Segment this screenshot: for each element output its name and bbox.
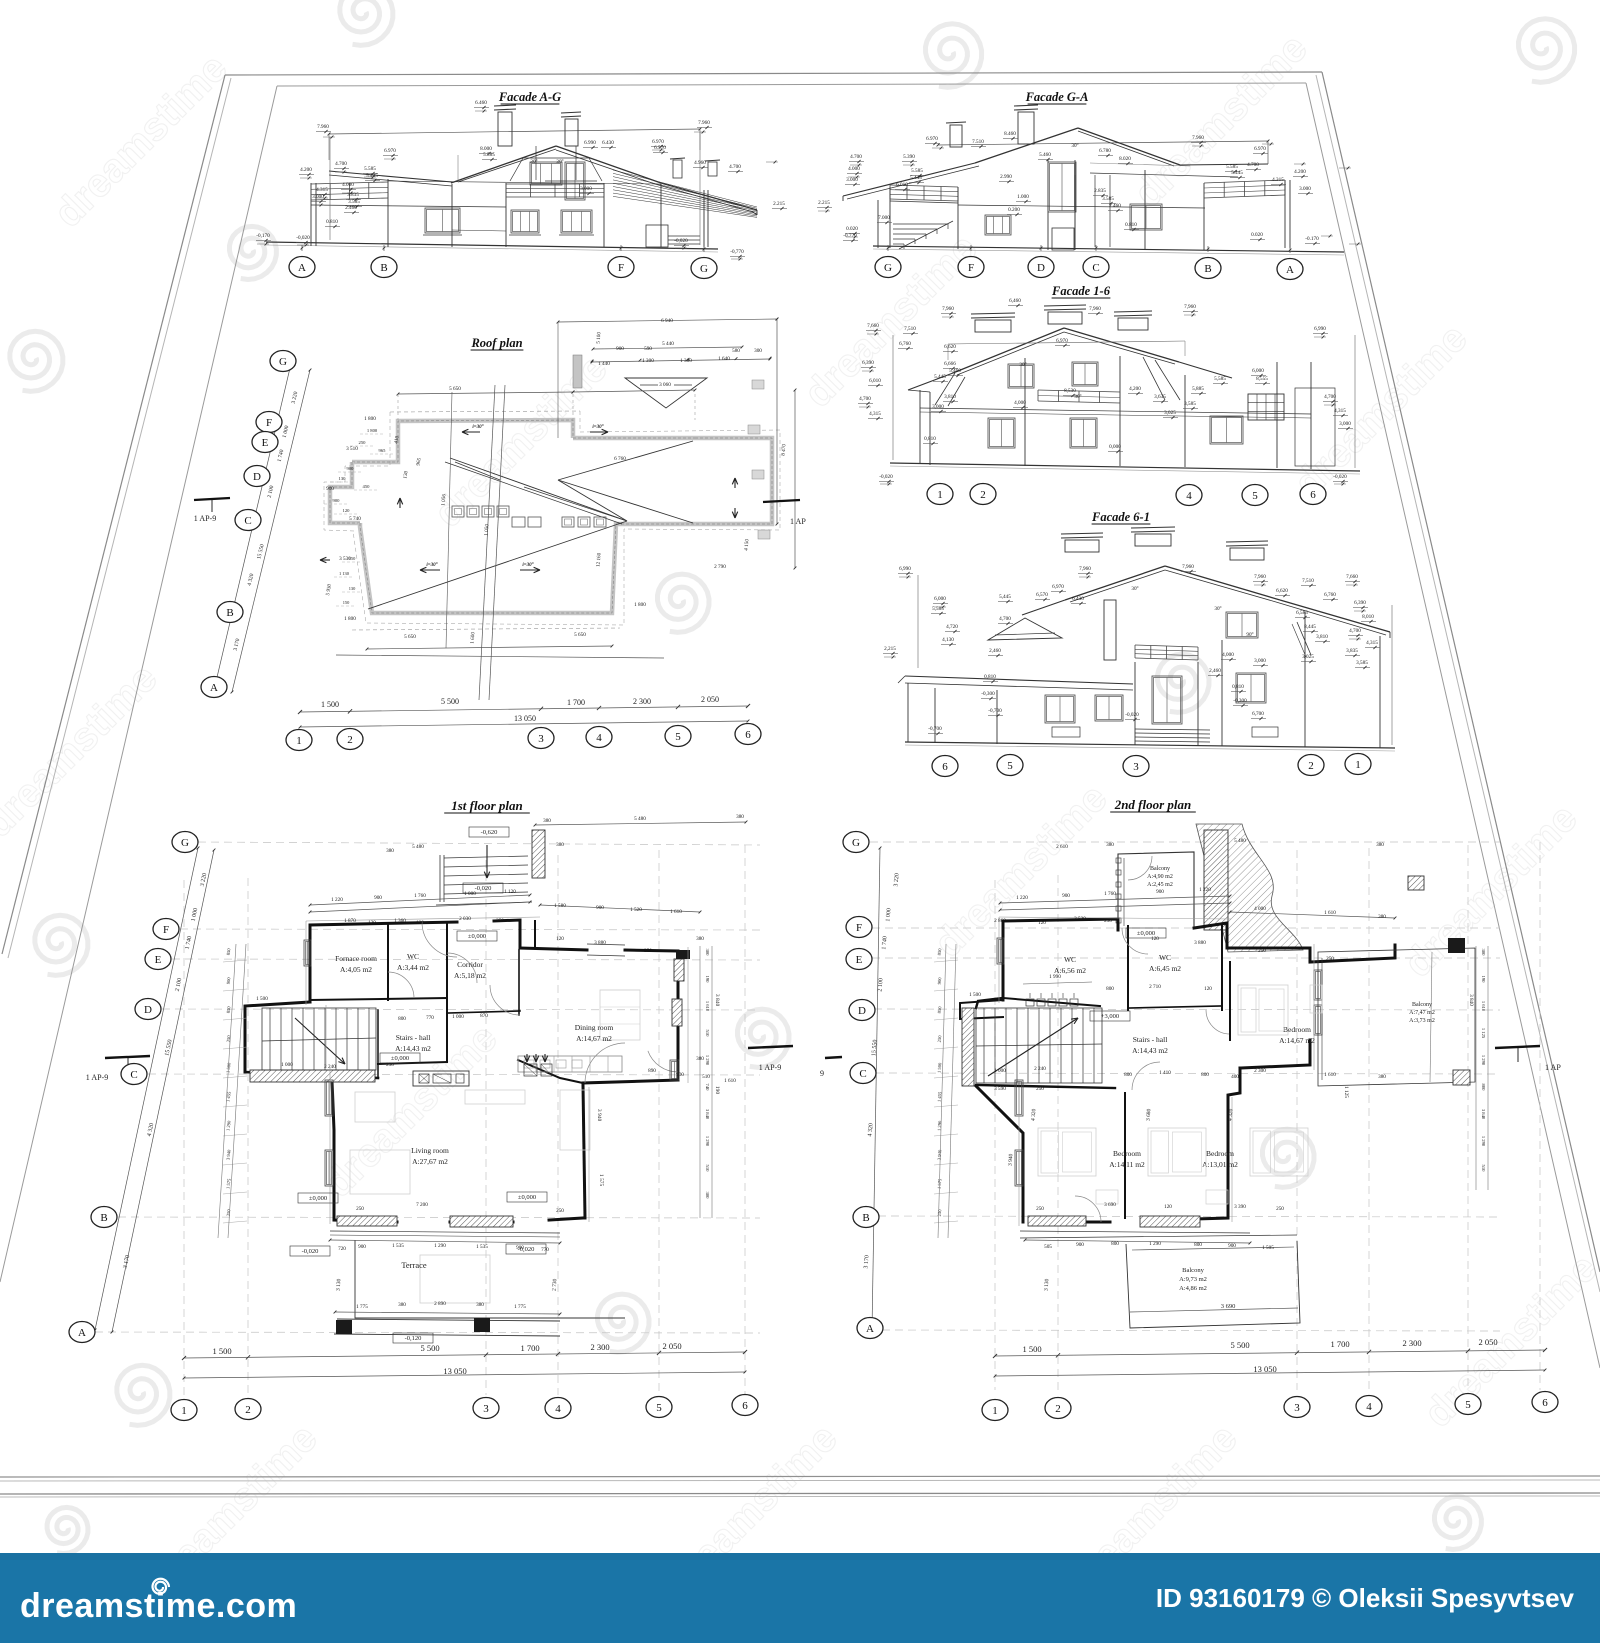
- svg-text:-0,020: -0,020: [879, 474, 893, 480]
- svg-text:6,000: 6,000: [934, 596, 946, 602]
- svg-text:380: 380: [476, 1302, 484, 1308]
- svg-text:F: F: [968, 262, 974, 274]
- svg-text:1 220: 1 220: [331, 897, 343, 903]
- svg-text:-0,700: -0,700: [988, 708, 1002, 714]
- svg-text:G: G: [181, 837, 189, 849]
- svg-text:2.215: 2.215: [773, 201, 785, 207]
- svg-text:1: 1: [181, 1405, 187, 1417]
- svg-text:6.460: 6.460: [475, 100, 487, 106]
- svg-text:1 610: 1 610: [724, 1078, 736, 1084]
- svg-text:120: 120: [1038, 920, 1046, 926]
- svg-text:1 AP-9: 1 AP-9: [759, 1063, 781, 1072]
- svg-text:A:14,67 m2: A:14,67 m2: [1279, 1036, 1315, 1045]
- svg-text:F: F: [163, 924, 169, 936]
- svg-text:Balcony: Balcony: [1412, 1002, 1432, 1008]
- svg-text:2 890: 2 890: [434, 1301, 446, 1307]
- svg-text:2.835: 2.835: [1094, 188, 1106, 194]
- svg-text:1 580: 1 580: [554, 903, 566, 909]
- svg-text:4,000: 4,000: [1222, 652, 1234, 658]
- svg-text:5 440: 5 440: [662, 341, 674, 347]
- svg-text:D: D: [253, 471, 261, 483]
- svg-text:5.460: 5.460: [1039, 152, 1051, 158]
- svg-text:2 790: 2 790: [714, 564, 726, 570]
- svg-text:5,445: 5,445: [999, 594, 1011, 600]
- svg-text:7.960: 7.960: [698, 120, 710, 126]
- svg-text:2 860: 2 860: [994, 918, 1006, 924]
- svg-text:0,000: 0,000: [1109, 444, 1121, 450]
- svg-text:3 840: 3 840: [714, 994, 720, 1007]
- svg-text:Stairs - hall: Stairs - hall: [1133, 1035, 1168, 1044]
- svg-text:0.810: 0.810: [326, 219, 338, 225]
- svg-text:1 220: 1 220: [1199, 887, 1211, 893]
- svg-text:4.315: 4.315: [316, 187, 328, 193]
- svg-text:580: 580: [732, 348, 740, 354]
- svg-text:4,700: 4,700: [859, 396, 871, 402]
- svg-text:13 050: 13 050: [443, 1366, 466, 1376]
- svg-text:5 500: 5 500: [420, 1343, 439, 1353]
- svg-text:3,025: 3,025: [1164, 410, 1176, 416]
- svg-text:1 AP: 1 AP: [1545, 1063, 1561, 1072]
- svg-text:380: 380: [543, 818, 551, 824]
- svg-text:7,960: 7,960: [1182, 564, 1194, 570]
- svg-text:A:3,73 m2: A:3,73 m2: [1409, 1018, 1435, 1024]
- svg-text:120: 120: [1204, 986, 1212, 992]
- svg-text:30°: 30°: [1214, 605, 1221, 612]
- svg-text:510: 510: [705, 1030, 710, 1038]
- svg-text:4,700: 4,700: [999, 616, 1011, 622]
- svg-text:3,635: 3,635: [1154, 394, 1166, 400]
- svg-text:5.445: 5.445: [1231, 170, 1243, 176]
- svg-text:5 100: 5 100: [596, 331, 603, 344]
- svg-text:4: 4: [596, 732, 602, 744]
- svg-text:E: E: [155, 954, 162, 966]
- svg-text:3 130: 3 130: [1043, 1278, 1050, 1291]
- svg-text:7,510: 7,510: [1302, 578, 1314, 584]
- svg-text:1 290: 1 290: [937, 1120, 943, 1131]
- svg-text:5: 5: [1252, 490, 1258, 502]
- svg-text:250: 250: [1326, 956, 1334, 962]
- svg-text:380: 380: [1378, 914, 1386, 920]
- svg-text:4.960: 4.960: [694, 160, 706, 166]
- svg-text:4,315: 4,315: [1334, 408, 1346, 414]
- svg-text:0.020: 0.020: [846, 226, 858, 232]
- svg-text:1 800: 1 800: [367, 428, 378, 433]
- svg-text:3: 3: [483, 1403, 489, 1415]
- svg-text:720: 720: [338, 1246, 346, 1252]
- svg-text:2 030: 2 030: [459, 916, 471, 922]
- svg-text:1 700: 1 700: [1330, 1339, 1349, 1349]
- svg-text:-0,020: -0,020: [674, 238, 688, 244]
- svg-text:F: F: [266, 417, 272, 429]
- svg-text:590: 590: [644, 346, 652, 352]
- svg-text:1 AP-9: 1 AP-9: [86, 1073, 108, 1082]
- svg-text:1 600: 1 600: [470, 631, 477, 644]
- svg-text:1 760: 1 760: [1104, 891, 1116, 897]
- svg-text:1 640: 1 640: [718, 356, 730, 362]
- svg-text:2.460: 2.460: [1109, 203, 1121, 209]
- svg-text:A:4,05 m2: A:4,05 m2: [340, 965, 372, 974]
- svg-text:A:4,90 m2: A:4,90 m2: [1147, 874, 1173, 880]
- svg-text:-0,700: -0,700: [928, 726, 942, 732]
- svg-text:450: 450: [363, 484, 371, 489]
- svg-text:3 940: 3 940: [596, 1109, 602, 1122]
- svg-text:3,585: 3,585: [1356, 660, 1368, 666]
- svg-text:380: 380: [705, 1192, 710, 1200]
- svg-text:1 125: 1 125: [1343, 1086, 1349, 1098]
- svg-text:5: 5: [1465, 1399, 1471, 1411]
- svg-text:120: 120: [1151, 936, 1159, 942]
- svg-text:5: 5: [675, 731, 681, 743]
- svg-text:0.020: 0.020: [1251, 232, 1263, 238]
- svg-text:-0,300: -0,300: [981, 691, 995, 697]
- svg-text:6,585: 6,585: [1296, 610, 1308, 616]
- svg-text:1 290: 1 290: [1481, 1055, 1486, 1066]
- svg-text:7.960: 7.960: [317, 124, 329, 130]
- svg-text:900: 900: [326, 486, 334, 492]
- svg-text:1 290: 1 290: [434, 1243, 446, 1249]
- svg-text:3 880: 3 880: [594, 940, 606, 946]
- svg-text:1 800: 1 800: [344, 616, 356, 622]
- svg-text:B: B: [862, 1212, 869, 1224]
- svg-text:740: 740: [705, 1084, 710, 1092]
- svg-text:5,460: 5,460: [949, 368, 961, 374]
- svg-text:-0.770: -0.770: [843, 233, 857, 239]
- svg-text:A:9,73 m2: A:9,73 m2: [1179, 1276, 1207, 1283]
- svg-text:6.970: 6.970: [926, 136, 938, 142]
- svg-text:D: D: [144, 1004, 152, 1016]
- svg-text:2: 2: [245, 1404, 251, 1416]
- svg-text:7,660: 7,660: [867, 323, 879, 329]
- svg-text:6 760: 6 760: [614, 456, 626, 462]
- svg-text:Facade A-G: Facade A-G: [498, 90, 561, 104]
- svg-text:6,430: 6,430: [1072, 596, 1084, 602]
- svg-text:1 800: 1 800: [364, 416, 376, 422]
- svg-text:1 056: 1 056: [441, 493, 448, 506]
- svg-text:5 650: 5 650: [449, 386, 461, 392]
- svg-text:6,760: 6,760: [899, 341, 911, 347]
- svg-text:190: 190: [1481, 976, 1486, 984]
- svg-text:3,835: 3,835: [1346, 648, 1358, 654]
- svg-text:7.000: 7.000: [878, 215, 890, 221]
- svg-text:3: 3: [1133, 761, 1139, 773]
- svg-text:-0,770: -0,770: [730, 249, 744, 255]
- svg-text:190: 190: [714, 1086, 720, 1095]
- svg-text:1 410: 1 410: [1159, 1070, 1171, 1076]
- svg-text:2 730: 2 730: [551, 1278, 558, 1291]
- svg-text:6,620: 6,620: [1276, 588, 1288, 594]
- svg-text:3,000: 3,000: [1254, 658, 1266, 664]
- svg-text:1st floor plan: 1st floor plan: [451, 798, 523, 813]
- svg-text:i=30°: i=30°: [592, 425, 603, 430]
- svg-text:120: 120: [343, 508, 351, 513]
- svg-text:1 520: 1 520: [630, 907, 642, 913]
- svg-text:WC: WC: [407, 952, 419, 961]
- svg-text:7.960: 7.960: [1192, 135, 1204, 141]
- svg-text:1 775: 1 775: [514, 1304, 526, 1310]
- svg-text:5 480: 5 480: [634, 816, 646, 822]
- svg-text:A:6,56 m2: A:6,56 m2: [1054, 966, 1086, 975]
- svg-text:3 840: 3 840: [1468, 994, 1474, 1006]
- svg-text:5,585: 5,585: [1214, 376, 1226, 382]
- svg-text:1 500: 1 500: [321, 700, 339, 709]
- svg-text:F: F: [618, 262, 624, 274]
- svg-text:250: 250: [556, 1208, 564, 1214]
- svg-text:3: 3: [1294, 1402, 1300, 1414]
- svg-text:1 000: 1 000: [885, 908, 892, 922]
- svg-text:1 535: 1 535: [392, 1243, 404, 1249]
- svg-text:A: A: [866, 1323, 874, 1335]
- svg-text:Bedroom: Bedroom: [1283, 1025, 1311, 1034]
- svg-text:C: C: [859, 1068, 866, 1080]
- svg-text:250: 250: [1258, 948, 1266, 954]
- svg-text:1 440: 1 440: [598, 361, 610, 367]
- svg-text:1 610: 1 610: [1324, 1072, 1336, 1078]
- svg-text:8.460: 8.460: [1004, 131, 1016, 137]
- svg-text:D: D: [858, 1005, 866, 1017]
- svg-text:±0,000: ±0,000: [518, 1194, 536, 1201]
- svg-text:380: 380: [1106, 842, 1114, 848]
- svg-text:2.460: 2.460: [345, 205, 357, 211]
- svg-text:250: 250: [359, 440, 367, 445]
- svg-text:510: 510: [702, 1074, 710, 1080]
- svg-text:850: 850: [937, 948, 943, 956]
- svg-text:250: 250: [1276, 1206, 1284, 1212]
- svg-text:4.200: 4.200: [300, 167, 312, 173]
- svg-text:1 800: 1 800: [634, 602, 646, 608]
- svg-text:7,960: 7,960: [1254, 574, 1266, 580]
- svg-text:C: C: [130, 1069, 137, 1081]
- svg-text:G: G: [852, 837, 860, 849]
- svg-text:505: 505: [1044, 1244, 1052, 1250]
- svg-text:6: 6: [1542, 1397, 1548, 1409]
- svg-text:770: 770: [426, 1015, 434, 1021]
- svg-text:1 000: 1 000: [464, 891, 476, 897]
- svg-text:0,810: 0,810: [924, 436, 936, 442]
- svg-text:1 360: 1 360: [394, 918, 406, 924]
- svg-text:6,570: 6,570: [1036, 592, 1048, 598]
- svg-text:3 510: 3 510: [346, 446, 358, 452]
- svg-text:1 870: 1 870: [344, 918, 356, 924]
- svg-text:6,990: 6,990: [899, 566, 911, 572]
- svg-text:130: 130: [349, 586, 356, 591]
- svg-text:7,960: 7,960: [1079, 566, 1091, 572]
- svg-text:7,510: 7,510: [904, 326, 916, 332]
- svg-text:770: 770: [541, 1247, 549, 1253]
- svg-text:8.020: 8.020: [1119, 156, 1131, 162]
- svg-text:4: 4: [1186, 490, 1192, 502]
- svg-text:30°: 30°: [530, 158, 537, 165]
- svg-text:3,810: 3,810: [1316, 634, 1328, 640]
- svg-text:90°: 90°: [1246, 631, 1253, 638]
- svg-text:3 840: 3 840: [1481, 1109, 1486, 1120]
- svg-text:900: 900: [1156, 889, 1164, 895]
- svg-text:8,555: 8,555: [1256, 376, 1268, 382]
- svg-text:G: G: [700, 263, 708, 275]
- svg-text:400: 400: [1231, 1074, 1239, 1080]
- svg-text:900: 900: [596, 905, 604, 911]
- svg-text:C: C: [1092, 262, 1099, 274]
- svg-text:1 AP: 1 AP: [790, 517, 806, 526]
- svg-text:-0,620: -0,620: [481, 829, 498, 836]
- svg-text:5 480: 5 480: [412, 844, 424, 850]
- svg-text:1 760: 1 760: [414, 893, 426, 899]
- svg-text:1 300: 1 300: [680, 358, 692, 364]
- svg-text:1 610: 1 610: [705, 1001, 710, 1012]
- svg-text:B: B: [380, 262, 387, 274]
- svg-text:5 500: 5 500: [441, 697, 459, 706]
- svg-text:0,810: 0,810: [984, 674, 996, 680]
- svg-text:A: A: [298, 262, 306, 274]
- svg-text:900: 900: [616, 346, 624, 352]
- svg-text:6.970: 6.970: [384, 148, 396, 154]
- svg-text:5 740: 5 740: [349, 516, 361, 522]
- svg-text:380: 380: [556, 842, 564, 848]
- svg-text:2,460: 2,460: [989, 648, 1001, 654]
- svg-text:900: 900: [676, 1072, 684, 1078]
- svg-text:3 220: 3 220: [893, 873, 900, 887]
- svg-text:6,970: 6,970: [1056, 338, 1068, 344]
- svg-text:A:6,45 m2: A:6,45 m2: [1149, 964, 1181, 973]
- svg-text:2: 2: [1308, 760, 1314, 772]
- svg-text:1 050: 1 050: [484, 523, 491, 536]
- svg-text:2: 2: [980, 489, 986, 501]
- svg-text:1 290: 1 290: [1149, 1241, 1161, 1247]
- svg-text:G: G: [279, 356, 287, 368]
- svg-text:1 775: 1 775: [356, 1304, 368, 1310]
- svg-text:120: 120: [368, 920, 376, 926]
- svg-text:1 610: 1 610: [1481, 1001, 1486, 1012]
- svg-text:4.000: 4.000: [342, 182, 354, 188]
- svg-text:30°: 30°: [1074, 393, 1081, 400]
- svg-text:6,666: 6,666: [944, 361, 956, 367]
- svg-text:4.700: 4.700: [1247, 162, 1259, 168]
- svg-text:1 610: 1 610: [670, 909, 682, 915]
- svg-text:4,315: 4,315: [1366, 640, 1378, 646]
- svg-text:6,990: 6,990: [1314, 326, 1326, 332]
- svg-text:12 160: 12 160: [595, 552, 602, 567]
- svg-text:1 500: 1 500: [1022, 1344, 1041, 1354]
- svg-text:130: 130: [339, 476, 347, 481]
- svg-text:800: 800: [1111, 1241, 1119, 1247]
- svg-text:3,810: 3,810: [944, 394, 956, 400]
- svg-text:4,000: 4,000: [1014, 400, 1026, 406]
- svg-text:380: 380: [398, 1302, 406, 1308]
- svg-text:E: E: [262, 437, 269, 449]
- svg-text:800: 800: [1481, 1084, 1486, 1092]
- svg-text:i=30°: i=30°: [426, 563, 437, 568]
- svg-text:1: 1: [992, 1405, 998, 1417]
- svg-text:+3,000: +3,000: [1101, 1013, 1119, 1020]
- svg-text:2,460: 2,460: [1209, 668, 1221, 674]
- svg-text:-0,120: -0,120: [405, 1335, 422, 1342]
- svg-text:4.200: 4.200: [1294, 169, 1306, 175]
- svg-text:1 500: 1 500: [969, 992, 981, 998]
- svg-text:1: 1: [937, 489, 943, 501]
- svg-text:5 650: 5 650: [404, 634, 416, 640]
- svg-text:4,700: 4,700: [1349, 628, 1361, 634]
- svg-text:3,585: 3,585: [1184, 401, 1196, 407]
- svg-text:1 700: 1 700: [567, 698, 585, 707]
- svg-text:-0,020: -0,020: [475, 885, 492, 892]
- svg-text:120: 120: [556, 936, 564, 942]
- svg-text:4 320: 4 320: [1030, 1108, 1037, 1121]
- svg-text:3 130: 3 130: [335, 1278, 342, 1291]
- svg-text:30°: 30°: [556, 158, 563, 165]
- svg-text:3 390: 3 390: [1234, 1204, 1246, 1210]
- svg-text:5.390: 5.390: [903, 154, 915, 160]
- svg-text:250: 250: [644, 948, 652, 954]
- svg-text:3.585: 3.585: [1102, 196, 1114, 202]
- svg-text:380: 380: [1376, 842, 1384, 848]
- svg-text:Bedroom: Bedroom: [1113, 1149, 1141, 1158]
- svg-text:8,010: 8,010: [1362, 614, 1374, 620]
- svg-text:4 320: 4 320: [867, 1123, 874, 1137]
- svg-text:800: 800: [1124, 1072, 1132, 1078]
- svg-text:30°: 30°: [1131, 585, 1138, 592]
- svg-text:1 500: 1 500: [212, 1346, 231, 1356]
- svg-text:250: 250: [496, 918, 504, 924]
- svg-text:380: 380: [1378, 1074, 1386, 1080]
- svg-text:5,885: 5,885: [1192, 386, 1204, 392]
- svg-text:1 220: 1 220: [1016, 895, 1028, 901]
- svg-text:Dining room: Dining room: [575, 1023, 614, 1032]
- svg-text:B: B: [100, 1212, 107, 1224]
- svg-text:380: 380: [1481, 949, 1486, 957]
- svg-text:A:13,01 m2: A:13,01 m2: [1202, 1160, 1238, 1169]
- svg-text:1 290: 1 290: [705, 1136, 710, 1147]
- svg-text:6.990: 6.990: [584, 140, 596, 146]
- svg-text:-0,020: -0,020: [296, 235, 310, 241]
- svg-text:-0,020: -0,020: [302, 1248, 319, 1255]
- svg-text:A:14,43 m2: A:14,43 m2: [1132, 1046, 1168, 1055]
- svg-text:4.315: 4.315: [1272, 177, 1284, 183]
- svg-text:1 575: 1 575: [598, 1174, 604, 1187]
- svg-text:900: 900: [1228, 1243, 1236, 1249]
- svg-text:1 505: 1 505: [1262, 1245, 1274, 1251]
- svg-text:13 050: 13 050: [514, 714, 536, 723]
- svg-text:2 300: 2 300: [633, 697, 651, 706]
- svg-text:6: 6: [1310, 489, 1316, 501]
- svg-text:7,960: 7,960: [1089, 306, 1101, 312]
- svg-text:1 290: 1 290: [1481, 1136, 1486, 1147]
- svg-text:30°: 30°: [1019, 361, 1026, 368]
- svg-text:Bedroom: Bedroom: [1206, 1149, 1234, 1158]
- svg-text:3 690: 3 690: [1104, 1202, 1116, 1208]
- svg-text:A:5,18 m2: A:5,18 m2: [454, 971, 486, 980]
- svg-text:3.000: 3.000: [312, 194, 324, 200]
- svg-text:B: B: [1204, 263, 1211, 275]
- svg-text:2 610: 2 610: [1056, 844, 1068, 850]
- svg-text:A:3,44 m2: A:3,44 m2: [397, 963, 429, 972]
- svg-text:6,620: 6,620: [944, 344, 956, 350]
- svg-text:-0.170: -0.170: [1305, 236, 1319, 242]
- svg-text:2,215: 2,215: [884, 646, 896, 652]
- svg-text:5.585: 5.585: [911, 168, 923, 174]
- svg-text:800: 800: [1201, 1072, 1209, 1078]
- svg-text:A:7,47 m2: A:7,47 m2: [1409, 1010, 1435, 1016]
- svg-text:-0,020: -0,020: [1125, 712, 1139, 718]
- svg-text:380: 380: [736, 814, 744, 820]
- svg-text:A:2,45 m2: A:2,45 m2: [1147, 882, 1173, 888]
- svg-text:13 050: 13 050: [1253, 1364, 1276, 1374]
- svg-text:1 740: 1 740: [881, 936, 888, 950]
- svg-text:900: 900: [374, 895, 382, 901]
- svg-text:Facade 6-1: Facade 6-1: [1091, 510, 1150, 524]
- svg-text:3 680: 3 680: [1145, 1108, 1152, 1121]
- svg-text:2 300: 2 300: [1402, 1338, 1421, 1348]
- svg-text:Balcony: Balcony: [1150, 866, 1170, 872]
- svg-text:D: D: [1037, 262, 1045, 274]
